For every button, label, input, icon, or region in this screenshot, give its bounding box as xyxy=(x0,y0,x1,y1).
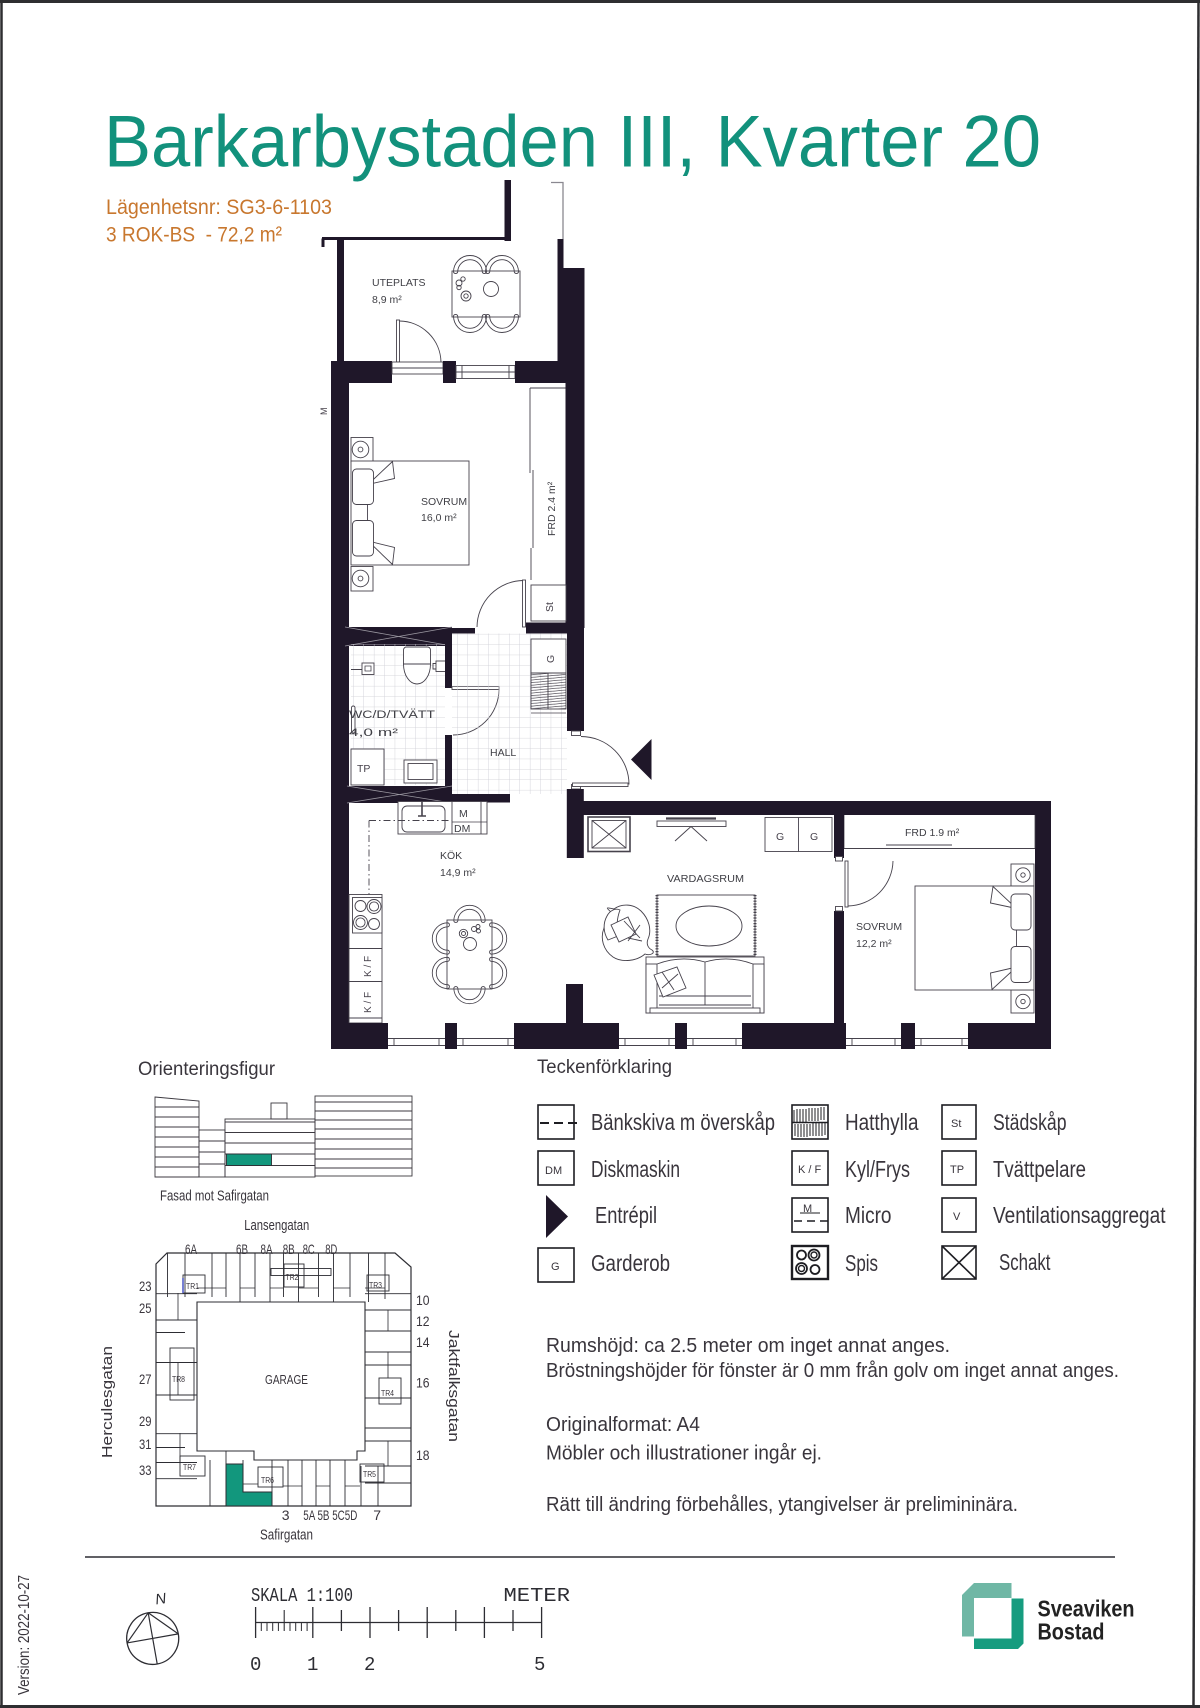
svg-text:St: St xyxy=(951,1118,961,1130)
svg-text:Bänkskiva m överskåp: Bänkskiva m överskåp xyxy=(591,1109,775,1135)
svg-text:TR3: TR3 xyxy=(369,1280,382,1290)
svg-text:Barkarbystaden III, Kvarter 20: Barkarbystaden III, Kvarter 20 xyxy=(104,101,1041,182)
svg-text:DM: DM xyxy=(545,1165,562,1177)
svg-text:K / F: K / F xyxy=(363,992,374,1013)
svg-text:5: 5 xyxy=(534,1654,545,1676)
svg-text:27: 27 xyxy=(139,1371,152,1387)
svg-text:3: 3 xyxy=(282,1507,290,1523)
svg-text:K / F: K / F xyxy=(798,1164,822,1176)
svg-text:G: G xyxy=(776,831,784,843)
svg-text:7: 7 xyxy=(373,1507,381,1523)
svg-text:Entrépil: Entrépil xyxy=(595,1202,657,1228)
svg-text:SOVRUM: SOVRUM xyxy=(421,496,467,508)
svg-text:12: 12 xyxy=(416,1313,430,1329)
svg-text:Teckenförklaring: Teckenförklaring xyxy=(537,1056,672,1078)
svg-text:10: 10 xyxy=(416,1292,430,1308)
svg-text:23: 23 xyxy=(139,1278,152,1294)
svg-text:8C: 8C xyxy=(303,1241,315,1257)
svg-text:14,9 m²: 14,9 m² xyxy=(440,867,476,879)
svg-text:M: M xyxy=(319,408,329,416)
svg-text:Fasad mot Safirgatan: Fasad mot Safirgatan xyxy=(160,1189,269,1205)
svg-text:6B: 6B xyxy=(236,1241,248,1257)
svg-text:Ventilationsaggregat: Ventilationsaggregat xyxy=(993,1202,1166,1228)
svg-text:Schakt: Schakt xyxy=(999,1249,1051,1275)
svg-text:Lansengatan: Lansengatan xyxy=(244,1218,309,1234)
svg-text:Bostad: Bostad xyxy=(1038,1619,1105,1645)
svg-text:Hatthylla: Hatthylla xyxy=(845,1109,919,1135)
svg-text:16,0 m²: 16,0 m² xyxy=(421,512,457,524)
svg-text:TP: TP xyxy=(357,763,370,775)
svg-text:FRD 2.4 m²: FRD 2.4 m² xyxy=(546,481,558,536)
svg-text:N: N xyxy=(154,1590,167,1608)
svg-text:G: G xyxy=(551,1261,560,1273)
svg-text:Originalformat: A4: Originalformat: A4 xyxy=(546,1414,700,1436)
svg-text:8B: 8B xyxy=(283,1241,295,1257)
svg-text:TP: TP xyxy=(950,1164,964,1176)
svg-text:8,9 m²: 8,9 m² xyxy=(372,294,402,306)
svg-text:18: 18 xyxy=(416,1447,430,1463)
svg-text:29: 29 xyxy=(139,1413,152,1429)
svg-text:31: 31 xyxy=(139,1436,152,1452)
svg-text:Kyl/Frys: Kyl/Frys xyxy=(845,1156,910,1182)
svg-text:Herculesgatan: Herculesgatan xyxy=(100,1346,116,1458)
svg-text:8D: 8D xyxy=(325,1241,337,1257)
svg-text:DM: DM xyxy=(454,823,470,835)
svg-text:V: V xyxy=(953,1211,961,1223)
svg-text:25: 25 xyxy=(139,1300,152,1316)
svg-text:2: 2 xyxy=(364,1654,375,1676)
svg-text:Garderob: Garderob xyxy=(591,1250,670,1276)
svg-text:Version: 2022-10-27: Version: 2022-10-27 xyxy=(16,1575,33,1695)
svg-text:4,0 m²: 4,0 m² xyxy=(349,727,399,739)
svg-text:TR8: TR8 xyxy=(172,1374,185,1384)
svg-text:Jaktfalksgatan: Jaktfalksgatan xyxy=(445,1330,461,1442)
svg-text:Tvättpelare: Tvättpelare xyxy=(993,1156,1086,1182)
svg-text:G: G xyxy=(545,655,557,663)
svg-text:Spis: Spis xyxy=(845,1250,878,1276)
svg-text:6A: 6A xyxy=(185,1241,197,1257)
svg-text:Safirgatan: Safirgatan xyxy=(260,1528,313,1544)
svg-text:0: 0 xyxy=(250,1654,261,1676)
svg-text:FRD 1.9 m²: FRD 1.9 m² xyxy=(905,827,960,839)
svg-text:8A: 8A xyxy=(261,1241,273,1257)
svg-text:5A 5B 5C5D: 5A 5B 5C5D xyxy=(303,1507,357,1523)
svg-text:14: 14 xyxy=(416,1334,430,1350)
svg-text:TR2: TR2 xyxy=(286,1272,299,1282)
svg-text:TR6: TR6 xyxy=(261,1475,274,1485)
svg-text:Micro: Micro xyxy=(845,1202,892,1228)
svg-text:St: St xyxy=(544,602,556,612)
svg-text:Orienteringsfigur: Orienteringsfigur xyxy=(138,1058,275,1080)
svg-text:G: G xyxy=(810,831,818,843)
svg-text:1: 1 xyxy=(307,1654,318,1676)
svg-text:TR7: TR7 xyxy=(183,1462,196,1472)
svg-text:Städskåp: Städskåp xyxy=(993,1109,1067,1135)
svg-text:M: M xyxy=(459,808,468,820)
svg-text:Diskmaskin: Diskmaskin xyxy=(591,1156,680,1182)
svg-text:Möbler och illustrationer ingå: Möbler och illustrationer ingår ej. xyxy=(546,1443,822,1465)
svg-text:GARAGE: GARAGE xyxy=(265,1372,308,1387)
svg-text:K / F: K / F xyxy=(363,956,374,977)
svg-text:TR1: TR1 xyxy=(186,1281,199,1291)
svg-text:Rumshöjd: ca 2.5 meter om inge: Rumshöjd: ca 2.5 meter om inget annat an… xyxy=(546,1335,950,1357)
svg-text:SOVRUM: SOVRUM xyxy=(856,921,902,933)
svg-text:12,2 m²: 12,2 m² xyxy=(856,938,892,950)
svg-text:Bröstningshöjder för fönster ä: Bröstningshöjder för fönster är 0 mm frå… xyxy=(546,1360,1119,1382)
svg-text:TR5: TR5 xyxy=(363,1469,376,1479)
svg-text:SKALA 1:100: SKALA 1:100 xyxy=(251,1585,353,1607)
svg-text:UTEPLATS: UTEPLATS xyxy=(372,277,425,289)
svg-text:HALL: HALL xyxy=(490,747,516,759)
svg-text:16: 16 xyxy=(416,1375,430,1391)
svg-text:33: 33 xyxy=(139,1462,152,1478)
svg-text:METER: METER xyxy=(504,1585,571,1607)
svg-text:Rätt till ändring förbehålles,: Rätt till ändring förbehålles, ytangivel… xyxy=(546,1494,1018,1516)
svg-text:VARDAGSRUM: VARDAGSRUM xyxy=(667,873,744,885)
svg-text:KÖK: KÖK xyxy=(440,850,462,862)
svg-text:WC/D/TVÄTT: WC/D/TVÄTT xyxy=(349,709,435,721)
svg-text:TR4: TR4 xyxy=(381,1388,394,1398)
svg-text:3 ROK-BS - 72,2 m²: 3 ROK-BS - 72,2 m² xyxy=(106,223,282,247)
svg-text:Lägenhetsnr: SG3-6-1103: Lägenhetsnr: SG3-6-1103 xyxy=(106,195,332,219)
